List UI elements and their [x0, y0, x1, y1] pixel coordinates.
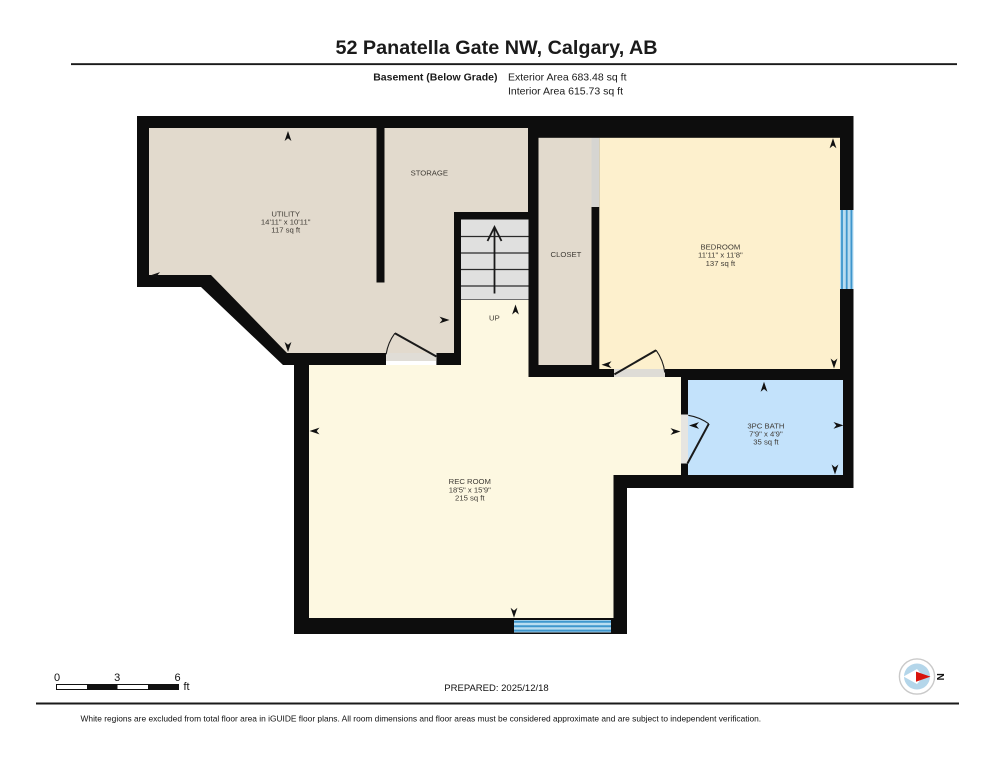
svg-text:6: 6 — [174, 672, 180, 684]
svg-text:215 sq ft: 215 sq ft — [455, 494, 485, 503]
svg-text:Basement (Below Grade): Basement (Below Grade) — [373, 72, 497, 84]
svg-text:STORAGE: STORAGE — [411, 169, 448, 178]
svg-text:PREPARED: 2025/12/18: PREPARED: 2025/12/18 — [444, 683, 548, 694]
svg-text:UP: UP — [489, 313, 500, 322]
svg-text:117 sq ft: 117 sq ft — [271, 226, 301, 235]
svg-text:ft: ft — [184, 681, 190, 693]
svg-text:3: 3 — [114, 672, 120, 684]
svg-text:137 sq ft: 137 sq ft — [706, 259, 736, 268]
svg-text:CLOSET: CLOSET — [551, 250, 582, 259]
svg-text:0: 0 — [54, 672, 60, 684]
svg-text:35 sq ft: 35 sq ft — [753, 437, 779, 446]
svg-text:Exterior Area 683.48 sq ft: Exterior Area 683.48 sq ft — [508, 72, 627, 84]
svg-text:52 Panatella Gate NW, Calgary,: 52 Panatella Gate NW, Calgary, AB — [335, 37, 657, 59]
svg-text:Interior Area 615.73 sq ft: Interior Area 615.73 sq ft — [508, 86, 623, 98]
svg-text:N: N — [934, 673, 945, 680]
svg-text:White regions are excluded fro: White regions are excluded from total fl… — [81, 714, 762, 724]
